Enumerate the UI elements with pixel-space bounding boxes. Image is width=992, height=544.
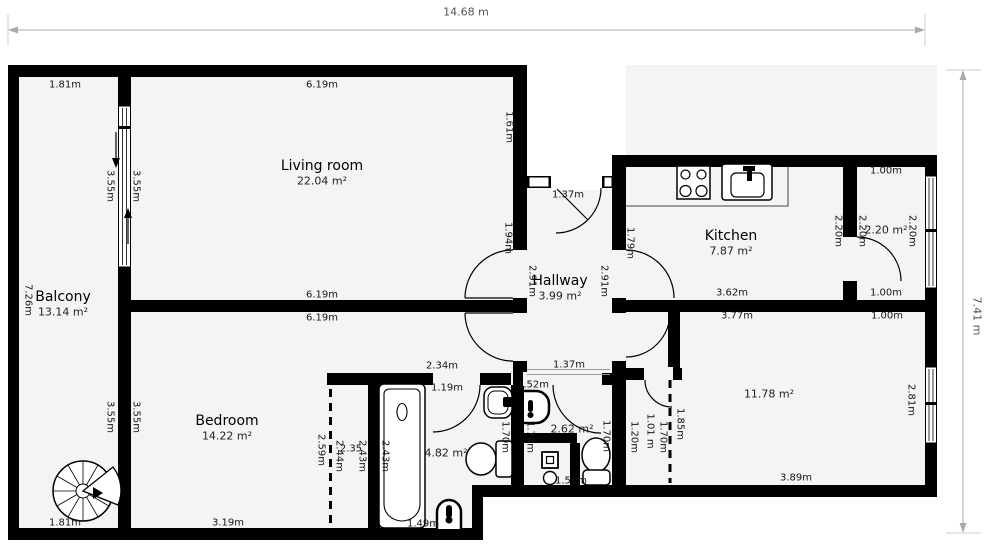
big-room-window	[926, 367, 937, 443]
bathroom-sink	[484, 387, 512, 418]
bathtub	[379, 384, 425, 528]
entry-door-opening	[551, 174, 602, 190]
washing-machine	[542, 452, 558, 468]
small-room-window	[926, 176, 937, 288]
bathroom-toilet	[466, 441, 512, 477]
dimension-line-right	[946, 70, 981, 533]
bathroom-radiator	[437, 500, 461, 529]
dimension-line-top	[8, 14, 925, 46]
wc-radiator	[524, 391, 549, 423]
kitchen-sink	[722, 164, 772, 200]
balcony-window	[119, 106, 131, 267]
stove	[677, 166, 710, 199]
floor-plan-canvas: 14.68 m 7.41 m Balcony13.14 m²Living roo…	[0, 0, 992, 544]
floor-plan-drawing	[0, 0, 992, 544]
wc-toilet	[582, 438, 610, 485]
